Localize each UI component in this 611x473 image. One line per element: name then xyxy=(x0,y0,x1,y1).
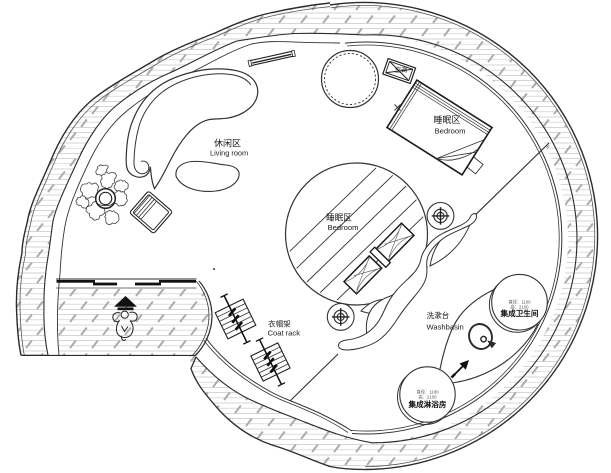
svg-text:衣帽架: 衣帽架 xyxy=(268,319,291,329)
svg-text:睡眠区: 睡眠区 xyxy=(433,114,460,125)
svg-text:Washbasin: Washbasin xyxy=(427,323,464,332)
svg-text:Coat rack: Coat rack xyxy=(268,329,301,338)
svg-text:空调: 空调 xyxy=(395,66,407,74)
svg-text:睡眠区: 睡眠区 xyxy=(326,213,352,223)
svg-text:洗漱台: 洗漱台 xyxy=(427,310,450,320)
svg-text:Living room: Living room xyxy=(210,149,248,158)
svg-text:集成卫生间: 集成卫生间 xyxy=(500,308,539,318)
svg-text:Bedroom: Bedroom xyxy=(435,127,466,136)
svg-text:休闲区: 休闲区 xyxy=(214,138,241,149)
svg-text:Bedroom: Bedroom xyxy=(328,223,359,232)
svg-text:集成淋浴房: 集成淋浴房 xyxy=(408,399,447,409)
